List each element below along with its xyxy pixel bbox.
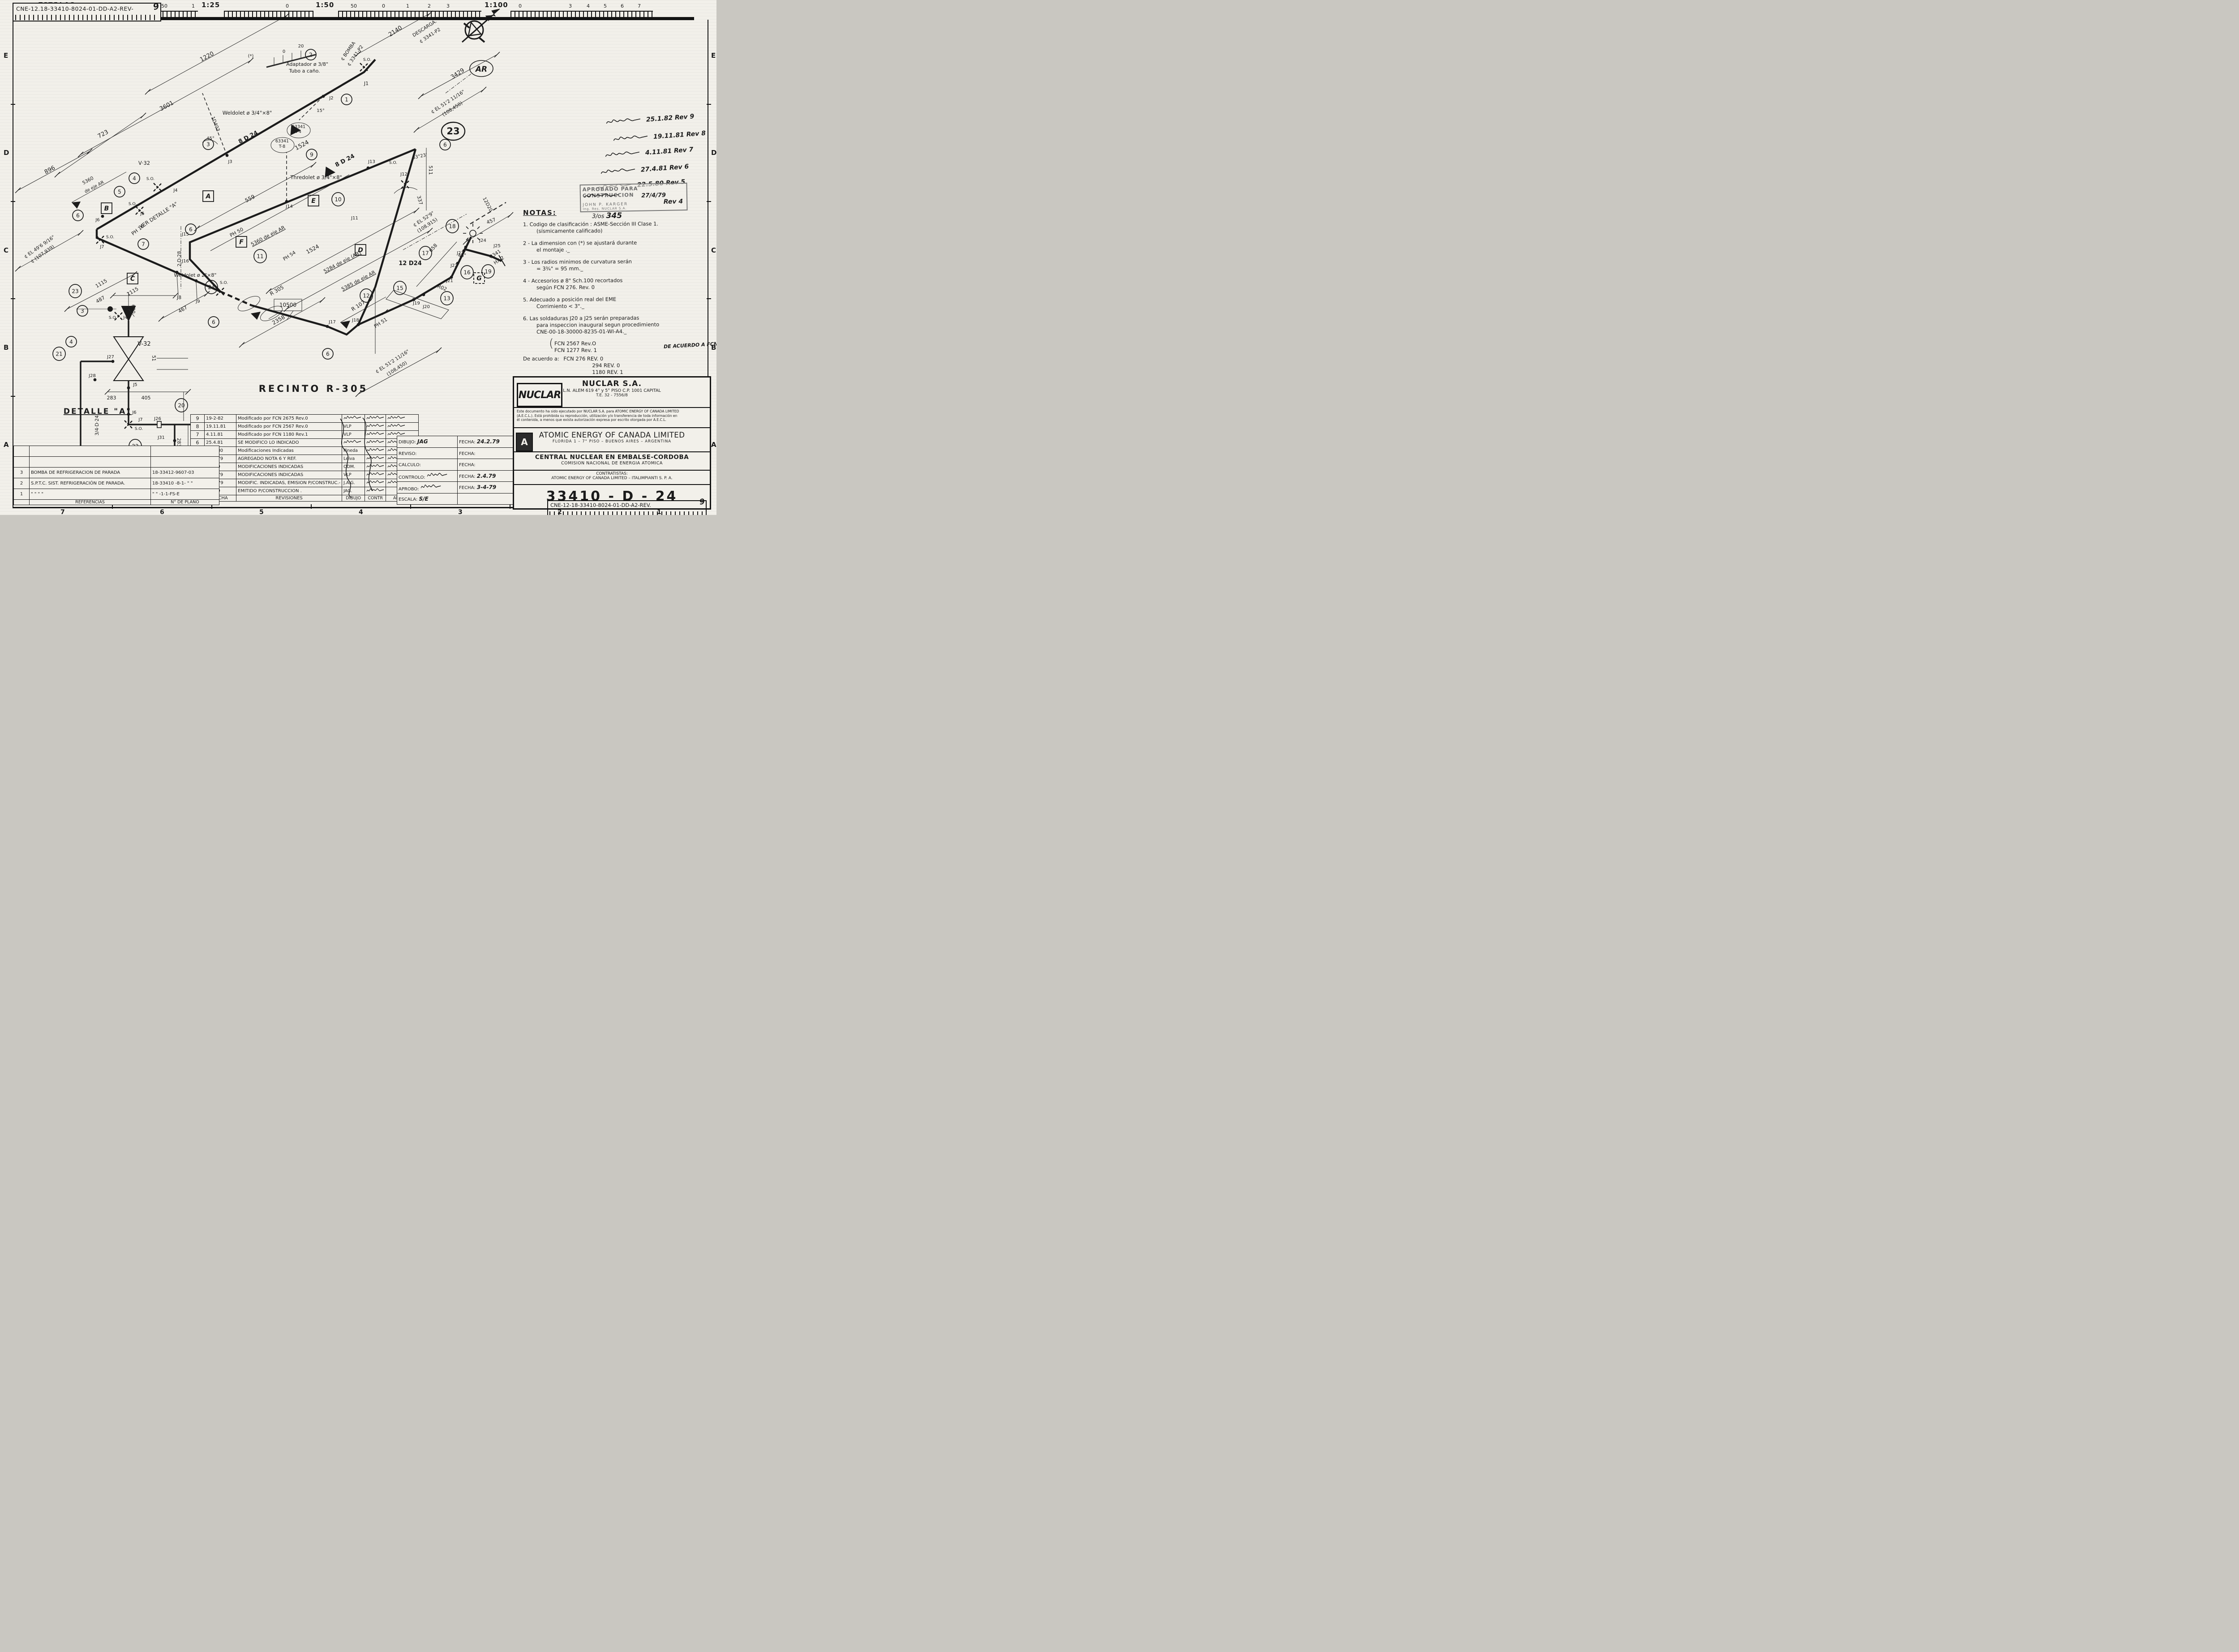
drawing-label: P4 bbox=[296, 129, 301, 134]
revision-cell: MODIFICACIONES INDICADAS bbox=[236, 471, 342, 479]
reference-cell bbox=[30, 457, 151, 468]
drawing-label: S.O. bbox=[389, 161, 397, 165]
margin-tick bbox=[311, 504, 312, 509]
note-line: 4 - Accesorios ø 8" Sch.100 recortados bbox=[523, 277, 623, 284]
contractors-label: CONTRATISTAS: bbox=[514, 472, 710, 476]
project-row: CENTRAL NUCLEAR EN EMBALSE-CORDOBA COMIS… bbox=[514, 454, 710, 471]
col-plano: N° DE PLANO bbox=[151, 500, 219, 505]
pipe-joint bbox=[127, 386, 130, 390]
drawing-label: 20 bbox=[298, 44, 304, 49]
sign-row: DIBUJO: JAGFECHA: 24.2.79 bbox=[397, 436, 517, 448]
margin-row-letter: E bbox=[711, 51, 716, 60]
drawing-label: V-32 bbox=[137, 341, 150, 348]
disclaimer-line: él contenida, a menos que exista autoriz… bbox=[517, 418, 708, 422]
drawing-label: J19 bbox=[412, 301, 420, 306]
revision-cell bbox=[342, 439, 365, 447]
reference-cell: " " " " bbox=[30, 489, 151, 500]
col-referencias: REFERENCIAS bbox=[30, 500, 151, 505]
dim-tick bbox=[414, 127, 419, 133]
so-x bbox=[136, 206, 144, 215]
dim-tick bbox=[414, 208, 419, 213]
callout-number: 19 bbox=[485, 269, 491, 275]
note-item: 4 - Accesorios ø 8" Sch.100 recortadosse… bbox=[529, 277, 708, 291]
col-ref-n bbox=[14, 500, 30, 505]
reference-cell: 18-33410 -8-1- " " bbox=[151, 478, 219, 489]
revision-cell: 19-2-82 bbox=[205, 415, 236, 423]
callout-number: 7 bbox=[142, 241, 145, 248]
revision-row: 819.11.81Modificado por FCN 2567 Rev.0VL… bbox=[191, 423, 419, 431]
sign-label: DIBUJO: bbox=[399, 440, 416, 445]
sign-value: S/E bbox=[419, 496, 429, 502]
sign-label: REVISO: bbox=[399, 451, 416, 456]
drawing-label: J1 bbox=[364, 81, 369, 86]
drawing-label: 1220 bbox=[199, 51, 215, 64]
callout-letter: B bbox=[104, 205, 109, 212]
revision-cell: MODIFICACIONES INDICADAS bbox=[236, 463, 342, 471]
callout-number: 12 bbox=[363, 293, 369, 299]
drawing-label: 15° bbox=[317, 108, 325, 113]
drawing-label: Weldolet ø 2"×8" bbox=[174, 272, 217, 278]
revision-cell: 4.11.81 bbox=[205, 431, 236, 439]
sign-date-cell: FECHA: bbox=[458, 447, 517, 459]
callout-number: 16 bbox=[463, 270, 470, 276]
callout-number: 15 bbox=[396, 285, 403, 292]
revision-cell bbox=[386, 415, 419, 423]
pipe-joint bbox=[285, 200, 288, 203]
scale-tick-number: 3 bbox=[446, 3, 450, 9]
sign-label: ESCALA: bbox=[399, 497, 417, 502]
note-item: 6. Las soldaduras J20 a J25 serán prepar… bbox=[529, 314, 708, 335]
drawing-label: J26 bbox=[154, 416, 161, 421]
scale-ratio: 1:100 bbox=[485, 1, 508, 9]
pipe-joint bbox=[322, 95, 325, 98]
note-item: 1. Codigo de clasificación : ASME-Secció… bbox=[529, 220, 708, 235]
reference-cell: 18-33412-9607-03 bbox=[151, 468, 219, 478]
note-line: 5. Adecuado a posición real del EME bbox=[523, 296, 616, 303]
revision-cell: EMITIDO P/CONSTRUCCION . bbox=[236, 487, 342, 495]
revision-cell: MODIFIC. INDICADAS, EMISION P/CONSTRUC.- bbox=[236, 479, 342, 487]
callout-number: 20 bbox=[178, 403, 184, 409]
pipe-joint bbox=[464, 246, 468, 249]
callout-number: 6 bbox=[443, 142, 447, 148]
callout-number: 6 bbox=[189, 227, 193, 233]
scale-ruler: 500123 bbox=[338, 11, 481, 17]
drawing-label: 283 bbox=[107, 395, 116, 401]
dim-tick bbox=[494, 52, 500, 57]
signature-icon bbox=[366, 447, 384, 453]
drawing-label: 5360 de eje AR bbox=[250, 224, 286, 247]
drawing-label: 1524 bbox=[294, 139, 310, 152]
note-line: según FCN 276. Rev. 0 bbox=[536, 283, 708, 291]
signature-icon bbox=[366, 423, 384, 429]
dim-tick bbox=[311, 162, 316, 167]
signature-icon bbox=[366, 479, 384, 485]
pipe-joint bbox=[101, 215, 104, 218]
drawing-label: J5 bbox=[140, 211, 144, 216]
disclaimer: Este documento ha sido ejecutado por NUC… bbox=[514, 408, 710, 428]
drawing-label: S.O. bbox=[220, 281, 228, 285]
so-weld-mark bbox=[216, 287, 224, 296]
drawing-label: 467 bbox=[177, 305, 189, 314]
pipe-joint bbox=[176, 271, 179, 274]
drawing-label: 337 bbox=[416, 195, 424, 206]
drawing-label: J5 bbox=[133, 382, 137, 387]
revisions-table: 919-2-82Modificado por FCN 2675 Rev.0819… bbox=[190, 414, 419, 502]
callout-letter: F bbox=[239, 239, 244, 246]
j26-nipple bbox=[157, 421, 161, 428]
signature-icon bbox=[387, 423, 405, 429]
note-item: 3 - Los radios minimos de curvatura será… bbox=[529, 258, 708, 272]
revision-cell bbox=[365, 415, 386, 423]
callout-letter: E bbox=[311, 197, 316, 205]
reference-cell: 3 bbox=[14, 468, 30, 478]
drawing-label: T-8 bbox=[279, 144, 285, 149]
reference-cell: 2 bbox=[14, 478, 30, 489]
dim-tick bbox=[481, 87, 486, 92]
so-x bbox=[360, 63, 368, 71]
so-weld-mark bbox=[136, 206, 144, 215]
reference-cell bbox=[151, 446, 219, 457]
margin-col-number: 6 bbox=[160, 509, 164, 515]
revision-cell: VLP bbox=[342, 431, 365, 439]
scale-ratio: 1:50 bbox=[316, 1, 334, 9]
aecl-row: A ATOMIC ENERGY OF CANADA LIMITED FLORID… bbox=[514, 431, 710, 452]
dim-tick bbox=[320, 297, 325, 303]
scale-tick-number: 1 bbox=[406, 3, 409, 9]
sign-date-cell: FECHA: 3-4-79 bbox=[458, 482, 517, 493]
drawing-label: J25 bbox=[493, 244, 501, 249]
commission-name: COMISION NACIONAL DE ENERGIA ATOMICA bbox=[514, 461, 710, 466]
recinto-title: RECINTO R-305 bbox=[259, 383, 369, 394]
revision-cell: Modificado por FCN 2675 Rev.0 bbox=[236, 415, 342, 423]
callout-number: 10 bbox=[335, 197, 341, 203]
scale-tick-number: 0 bbox=[519, 3, 522, 9]
margin-tick bbox=[707, 201, 711, 202]
drawing-label: S.O. bbox=[363, 58, 371, 62]
note-line: el montaje ._ bbox=[536, 246, 708, 253]
fcn-list-line: 1180 REV. 1 bbox=[592, 369, 623, 376]
sign-label-cell: APROBO: bbox=[397, 482, 458, 493]
margin-tick bbox=[11, 201, 15, 202]
callout-number: 18 bbox=[449, 223, 455, 230]
margin-tick bbox=[410, 504, 411, 509]
signature-icon bbox=[366, 487, 384, 493]
col-contr: CONTR bbox=[365, 495, 386, 502]
notes-title: NOTAS: bbox=[523, 210, 708, 216]
sign-row: REVISO: FECHA: bbox=[397, 447, 517, 459]
drawing-label: PH 54 bbox=[282, 250, 297, 262]
sign-label: CONTROLO: bbox=[399, 475, 425, 480]
dim-tick bbox=[436, 348, 442, 353]
margin-tick bbox=[11, 104, 15, 105]
note-line: 3 - Los radios minimos de curvatura será… bbox=[523, 258, 632, 265]
callout-number: 6 bbox=[76, 213, 80, 219]
revision-cell bbox=[365, 455, 386, 463]
drawing-label: (*) bbox=[248, 54, 254, 59]
revision-cell bbox=[365, 439, 386, 447]
drawing-label: 511 bbox=[428, 166, 433, 175]
callout-number: 6 bbox=[212, 319, 215, 326]
drawing-label: 5360 bbox=[81, 176, 94, 186]
drawing-label: Tubo a caño. bbox=[288, 68, 320, 74]
drawing-label: Weldolet ø 3/4"×8" bbox=[223, 110, 272, 116]
detail-a-title: DETALLE "A" bbox=[64, 407, 132, 416]
revision-cell bbox=[365, 487, 386, 495]
drawing-label: 51 bbox=[151, 355, 156, 361]
scale-ruler: 034567 bbox=[510, 11, 653, 17]
revision-cell bbox=[386, 423, 419, 431]
signature-icon bbox=[366, 415, 384, 421]
margin-tick bbox=[11, 298, 15, 299]
handwritten-rev: 9 bbox=[152, 1, 160, 12]
note-line: Corrimiento < 3"._ bbox=[536, 302, 708, 310]
reference-cell bbox=[14, 446, 30, 457]
signature-icon bbox=[343, 415, 361, 421]
margin-col-number: 3 bbox=[458, 509, 463, 515]
sign-label-cell: CONTROLO: bbox=[397, 470, 458, 482]
note-line: = 3¾" = 95 mm._ bbox=[536, 265, 708, 272]
revision-row: 919-2-82Modificado por FCN 2675 Rev.0 bbox=[191, 415, 419, 423]
drawing-label: J15 bbox=[181, 232, 189, 237]
drawing-label: J21 bbox=[446, 279, 453, 283]
revision-cell: JAG. bbox=[342, 487, 365, 495]
reference-cell bbox=[151, 457, 219, 468]
document-code-stamp: CNE-12.18-33410-8024-01-DD-A2-REV- 9 bbox=[13, 3, 161, 21]
drawing-label: 5284 de eje (AR) bbox=[322, 249, 362, 274]
revision-cell bbox=[365, 423, 386, 431]
fecha-label: FECHA: bbox=[459, 463, 476, 468]
drawing-label: Adaptador ø 3/8" bbox=[286, 61, 328, 67]
fecha-value: 3-4-79 bbox=[477, 484, 496, 490]
callout-number: 11 bbox=[257, 253, 263, 260]
scale-tick-number: 1 bbox=[192, 3, 195, 9]
fecha-value: 2.4.79 bbox=[477, 473, 496, 479]
pipe-joint bbox=[463, 249, 466, 253]
sign-label-cell: REVISO: bbox=[397, 447, 458, 459]
sign-row: APROBO: FECHA: 3-4-79 bbox=[397, 482, 517, 493]
scale-tick-number: 6 bbox=[621, 3, 624, 9]
callout-number: 3 bbox=[81, 308, 84, 314]
contractors-row: CONTRATISTAS: ATOMIC ENERGY OF CANADA LI… bbox=[514, 472, 710, 485]
drawing-label: J4 bbox=[123, 315, 127, 320]
pipe-joint bbox=[367, 167, 370, 170]
drawing-label: J7 bbox=[138, 417, 142, 422]
aecl-address: FLORIDA 1 – 7° PISO – BUENOS AIRES – ARG… bbox=[514, 439, 710, 444]
reference-cell: " " -1-1-FS-E bbox=[151, 489, 219, 500]
drawing-label: 600 bbox=[130, 305, 136, 313]
document-code: CNE-12.18-33410-8024-01-DD-A2-REV- bbox=[16, 5, 133, 12]
reference-cell: BOMBA DE REFRIGERACION DE PARADA bbox=[30, 468, 151, 478]
ar-label: AR bbox=[475, 65, 487, 74]
fecha-label: FECHA: bbox=[459, 474, 476, 479]
scale-tick-number: 5 bbox=[604, 3, 607, 9]
drawing-label: J6 bbox=[95, 218, 99, 223]
drawing-label: J2 bbox=[329, 96, 333, 101]
drawing-sheet: 2140DESCARGA.¢ 3341-P2¢ BOMBA¢ 3341-P2Ad… bbox=[0, 0, 716, 515]
scale-tick-number: 50 bbox=[351, 3, 357, 9]
revision-row: 223.8.79MODIFICACIONES INDICADASVLP bbox=[191, 471, 419, 479]
fecha-label: FECHA: bbox=[459, 440, 476, 445]
margin-row-letter: A bbox=[4, 441, 9, 449]
drawing-label: J20 bbox=[422, 305, 430, 309]
sign-value: JAG bbox=[417, 438, 428, 445]
signature-icon bbox=[366, 431, 384, 437]
revision-cell: Modificaciones Indicadas bbox=[236, 447, 342, 455]
drawing-label: S.O. bbox=[106, 235, 114, 240]
sign-date-cell: FECHA: 2.4.79 bbox=[458, 470, 517, 482]
dim-tick bbox=[145, 89, 150, 94]
dim-tick bbox=[159, 316, 164, 322]
callout-number: 4 bbox=[69, 339, 73, 345]
revision-cell: AGREGADO NOTA 6 Y REF. bbox=[236, 455, 342, 463]
title-block: NUCLAR NUCLAR S.A. L.N. ALEM 619 4° y 5°… bbox=[513, 376, 711, 510]
sign-label-cell: DIBUJO: JAG bbox=[397, 436, 458, 448]
margin-row-letter: C bbox=[4, 246, 9, 254]
fcn-list-line: FCN 276 REV. 0 bbox=[563, 356, 623, 362]
callout-number: 2 bbox=[309, 52, 313, 58]
revision-cell: J.A.G. bbox=[342, 479, 365, 487]
revision-cell bbox=[365, 431, 386, 439]
dim-tick bbox=[141, 113, 146, 118]
fecha-value: 24.2.79 bbox=[477, 438, 500, 445]
fcn-bracket: ( FCN 2567 Rev.OFCN 1277 Rev. 1 DE ACUER… bbox=[554, 340, 708, 354]
revision-cell: Pineda bbox=[342, 447, 365, 455]
revision-row: 625.4.81SE MODIFICO LO INDICADO bbox=[191, 439, 419, 447]
note-item: 5. Adecuado a posición real del EMECorri… bbox=[529, 296, 708, 310]
sign-label: APROBO: bbox=[399, 487, 419, 492]
sign-date-cell: FECHA: 24.2.79 bbox=[458, 436, 517, 448]
pipe-joint bbox=[357, 323, 360, 326]
drawing-label: R 305 bbox=[269, 284, 285, 297]
dim-tick bbox=[15, 188, 21, 193]
revision-row: 03.4.79EMITIDO P/CONSTRUCCION .JAG. bbox=[191, 487, 419, 495]
reference-row: 3BOMBA DE REFRIGERACION DE PARADA18-3341… bbox=[14, 468, 219, 478]
revision-cell: VLP bbox=[342, 423, 365, 431]
scale-tick-number: 2 bbox=[428, 3, 431, 9]
margin-col-number: 5 bbox=[259, 509, 264, 515]
sign-row: CONTROLO: FECHA: 2.4.79 bbox=[397, 470, 517, 482]
pipe-joint bbox=[195, 279, 198, 283]
drawing-label: J14 bbox=[285, 204, 293, 209]
sign-label-cell: CALCULO: bbox=[397, 459, 458, 471]
note-line: CNE-00-18-30000-8235-01-WI-A4._ bbox=[536, 328, 708, 335]
drawing-label: 3601 bbox=[159, 100, 175, 113]
callout-number: 21 bbox=[56, 351, 62, 357]
note-item: 2 - La dimension con (*) se ajustará dur… bbox=[529, 239, 708, 253]
drawing-label: J31 bbox=[157, 435, 165, 440]
note-line: 2 - La dimension con (*) se ajustará dur… bbox=[523, 240, 637, 246]
project-name: CENTRAL NUCLEAR EN EMBALSE-CORDOBA bbox=[514, 454, 710, 461]
revision-cell bbox=[365, 463, 386, 471]
dim-tick bbox=[78, 230, 83, 236]
revision-row: 74.11.81Modificado por FCN 1180 Rev.1VLP bbox=[191, 431, 419, 439]
references-table: 3BOMBA DE REFRIGERACION DE PARADA18-3341… bbox=[13, 446, 219, 505]
revision-cell: 19.11.81 bbox=[205, 423, 236, 431]
margin-row-letter: A bbox=[711, 441, 716, 449]
margin-tick bbox=[707, 104, 711, 105]
scale-tick-number: 4 bbox=[587, 3, 590, 9]
pipe-joint bbox=[450, 276, 453, 279]
scale-tick-number: 0 bbox=[382, 3, 385, 9]
drawing-label: 405 bbox=[142, 395, 151, 401]
sign-date-cell: FECHA: bbox=[458, 459, 517, 471]
revision-row: 427.9.79AGREGADO NOTA 6 Y REF.Leiva bbox=[191, 455, 419, 463]
doc-code-strip: CNE-12-18-33410-8024-01-DD-A2-REV. 9 bbox=[547, 500, 707, 515]
dim-tick bbox=[508, 212, 513, 218]
margin-col-number: 4 bbox=[359, 509, 363, 515]
fecha-label: FECHA: bbox=[459, 485, 476, 490]
pipe-joint bbox=[226, 154, 229, 157]
revision-cell: Modificado por FCN 1180 Rev.1 bbox=[236, 431, 342, 439]
drawing-label: 12 D24 bbox=[399, 260, 422, 267]
callout-number: 3 bbox=[206, 142, 210, 148]
revision-cell: VLP bbox=[342, 471, 365, 479]
pipe-runs bbox=[97, 60, 502, 335]
callout-number: 13 bbox=[443, 296, 450, 302]
margin-tick bbox=[510, 504, 510, 509]
drawing-label: J7 bbox=[99, 245, 104, 249]
drawing-label: 12D20 bbox=[481, 196, 493, 212]
sign-row: ESCALA: S/E bbox=[397, 493, 517, 505]
sign-label-cell: ESCALA: S/E bbox=[397, 493, 458, 505]
reference-cell bbox=[14, 457, 30, 468]
drawing-label: J8 bbox=[176, 295, 181, 300]
references-header-row: REFERENCIAS N° DE PLANO bbox=[14, 500, 219, 505]
signature-icon bbox=[366, 463, 384, 469]
revision-cell: 8 bbox=[191, 423, 205, 431]
signature-icon bbox=[427, 472, 447, 479]
so-x bbox=[154, 183, 162, 191]
nuclar-logo: NUCLAR bbox=[517, 383, 562, 407]
fecha-label: FECHA: bbox=[459, 451, 476, 456]
aecl-logo: A bbox=[516, 433, 533, 451]
callout-number: 1 bbox=[345, 97, 348, 103]
margin-row-letter: D bbox=[711, 149, 716, 157]
drawing-label: 2140 bbox=[387, 25, 403, 39]
signature-icon bbox=[366, 471, 384, 477]
callout-letter: G bbox=[476, 275, 482, 282]
disclaimer-line: (A.E.C.L.). Está prohibida su reproducci… bbox=[517, 414, 708, 418]
revision-cell bbox=[365, 479, 386, 487]
drawing-label: J6 bbox=[132, 410, 136, 415]
pipe-joint bbox=[127, 413, 130, 416]
company-row: NUCLAR NUCLAR S.A. L.N. ALEM 619 4° y 5°… bbox=[514, 379, 710, 408]
reference-cell: 1 bbox=[14, 489, 30, 500]
scale-ratio: 1:25 bbox=[202, 1, 220, 9]
reference-row bbox=[14, 457, 219, 468]
pipe-joint bbox=[489, 255, 493, 258]
dim-tick bbox=[15, 266, 21, 271]
so-x bbox=[216, 287, 224, 296]
drawing-label: R02 bbox=[437, 283, 448, 292]
drawing-label: J27 bbox=[107, 355, 114, 360]
drawing-label: 3/4·D·24 bbox=[94, 415, 100, 435]
callout-letter: A bbox=[206, 193, 211, 200]
col-revisiones: REVISIONES bbox=[236, 495, 342, 502]
signature-icon bbox=[343, 439, 361, 445]
note-line: 1. Codigo de clasificación : ASME-Secció… bbox=[523, 221, 658, 228]
approval-stamp: APROBADO PARA CONSTRUCCION 27/4/79 JOHN … bbox=[579, 183, 687, 212]
doc-code: CNE-12-18-33410-8024-01-DD-A2-REV. bbox=[550, 502, 651, 508]
de-acuerdo-label: De acuerdo a: bbox=[523, 356, 559, 362]
revision-cell: 7 bbox=[191, 431, 205, 439]
callout-number: 9 bbox=[310, 152, 313, 158]
drawing-label: S.O. bbox=[135, 427, 143, 431]
signature-icon bbox=[387, 415, 405, 421]
drawing-label: 0 bbox=[283, 49, 285, 54]
callout-letter: D bbox=[358, 247, 363, 254]
aecl-name: ATOMIC ENERGY OF CANADA LIMITED bbox=[514, 431, 710, 439]
